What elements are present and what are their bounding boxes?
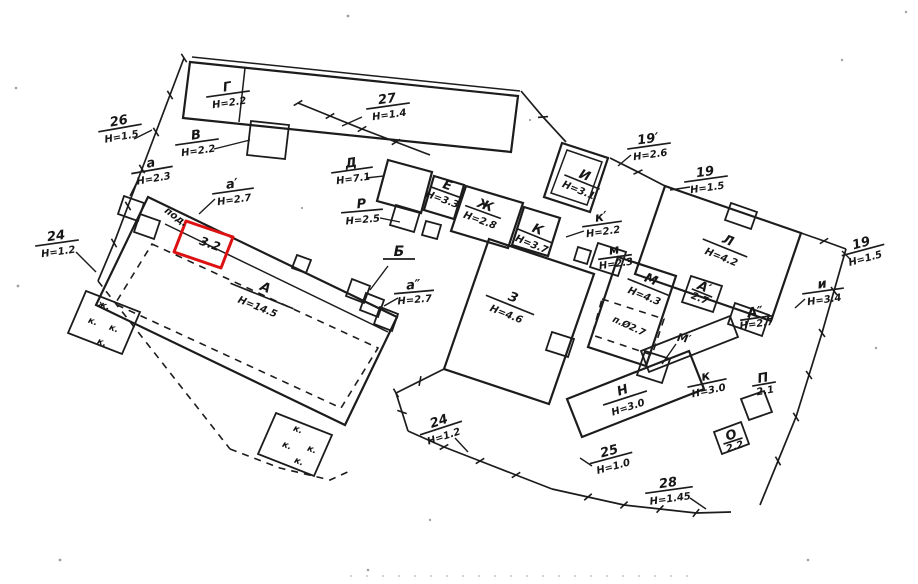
- label-bottom: Н=1.45: [649, 491, 692, 508]
- leader: [384, 298, 398, 306]
- leader: [690, 498, 706, 509]
- label-building-zh: Ж Н=2.8: [460, 192, 506, 232]
- building-g-roofline: [192, 57, 520, 91]
- fence-19-top: [801, 233, 846, 249]
- label-bottom: Н=2.5: [345, 213, 380, 227]
- label-m-small: м Н=2.3: [596, 241, 634, 273]
- mark-letter: к.: [280, 440, 293, 453]
- label-porch-a2: а″ Н=2.7: [393, 276, 435, 307]
- label-box-a1s: А′ 2.7: [687, 277, 717, 308]
- label-bottom: Н=2.6: [632, 148, 668, 164]
- square-symbol: [574, 247, 591, 264]
- label-bottom: Н=1.5: [104, 129, 140, 146]
- scan-noise: [15, 11, 908, 576]
- label-text: Б: [394, 244, 405, 260]
- label-fence-19-prime: 19′ Н=2.6: [625, 129, 673, 164]
- mark-letter: к.: [291, 424, 304, 437]
- label-building-d: Д Н=7.1: [329, 153, 375, 188]
- label-box-o: О 2.2: [719, 426, 746, 456]
- label-bottom: Н=3.4: [806, 293, 842, 309]
- mark-letter: к.: [86, 316, 98, 329]
- mark-letter: к.: [107, 323, 119, 336]
- leader: [199, 199, 215, 214]
- label-fence-26: 26 Н=1.5: [96, 110, 144, 146]
- basement-dashed-outline: [115, 244, 378, 408]
- label-fence-28: 28 Н=1.45: [643, 473, 695, 508]
- label-building-z: З Н=4.6: [480, 281, 540, 329]
- fence-27: [298, 103, 430, 155]
- building-a-outline: [96, 197, 397, 425]
- label-building-g: Г Н=2.2: [204, 77, 252, 112]
- label-bottom: Н=7.1: [335, 172, 371, 188]
- porch-e: [422, 221, 441, 239]
- label-k-small: к′ Н=2.2: [580, 207, 624, 240]
- label-building-a-main: А Н=14.5: [224, 268, 300, 325]
- label-text: под.: [162, 205, 189, 229]
- leader: [370, 266, 388, 290]
- marks-bottom-room: к. к. к. к.: [280, 424, 318, 469]
- label-bottom: Н=1.4: [371, 108, 407, 124]
- label-building-v: В Н=2.2: [173, 125, 221, 160]
- leader: [455, 438, 468, 452]
- leader: [76, 252, 96, 272]
- label-text: М′: [676, 331, 692, 346]
- label-bottom: Н=3.1: [560, 179, 596, 202]
- fence-g-i: [521, 91, 566, 142]
- fence-25-28: [552, 489, 731, 513]
- boundary-dashed-bottom: [230, 449, 352, 480]
- fence-right: [760, 249, 846, 505]
- label-bottom: Н=2.2: [585, 225, 621, 241]
- label-i-small: и Н=3.4: [800, 274, 846, 309]
- label-m-basement: п.Ø2.7: [611, 314, 648, 339]
- building-m-outline: [588, 257, 676, 366]
- site-plan-scan: 26 Н=1.5 Г Н=2.2 В Н=2.2 27 Н=1.4 а Н=2.…: [0, 0, 918, 584]
- label-basement-pod: под.: [162, 205, 189, 229]
- label-fence-24-west: 24 Н=1.2: [33, 226, 81, 261]
- label-bottom: Н=1.5: [689, 181, 725, 197]
- label-bottom: Н=4.2: [703, 246, 739, 269]
- label-m-prime: М′: [676, 331, 692, 346]
- porch-square: [134, 214, 160, 239]
- label-porch-a: а Н=2.3: [129, 153, 175, 189]
- label-bottom: Н=1.2: [40, 245, 76, 261]
- plan-drawing: 26 Н=1.5 Г Н=2.2 В Н=2.2 27 Н=1.4 а Н=2.…: [0, 0, 918, 584]
- boundary-dashed-left: [98, 281, 230, 449]
- label-fence-25: 25 Н=1.0: [586, 439, 636, 478]
- label-top: М: [642, 271, 660, 290]
- label-highlighted-value: 3.2: [198, 234, 223, 254]
- label-bottom: Н=3.3: [424, 189, 460, 211]
- leader: [566, 231, 584, 237]
- leader: [214, 140, 250, 149]
- mark-letter: к.: [305, 444, 318, 457]
- leader: [380, 218, 400, 222]
- label-bottom: Н=2.7: [397, 293, 432, 307]
- label-fence-19-a: 19 Н=1.5: [682, 162, 730, 197]
- building-a-inner-wall: [165, 224, 388, 332]
- mark-letter: к.: [292, 456, 305, 469]
- label-bottom: 2.1: [756, 384, 775, 398]
- label-building-l: Л Н=4.2: [697, 225, 753, 272]
- leader: [795, 299, 805, 308]
- label-fence-27: 27 Н=1.4: [364, 89, 412, 124]
- label-text: п.Ø2.7: [611, 314, 648, 339]
- room-k-marks-bottom: [258, 413, 332, 476]
- label-bottom: Н=4.3: [626, 285, 662, 308]
- label-bottom: Н=2.2: [211, 96, 247, 112]
- label-porch-b: Б: [383, 244, 415, 260]
- leader: [580, 458, 592, 466]
- label-porch-a2s: А″ Н=2.7: [737, 303, 775, 333]
- label-bottom: Н=2.2: [180, 144, 216, 160]
- label-bottom: Н=4.6: [488, 303, 524, 326]
- label-building-i: И Н=3.1: [559, 162, 605, 203]
- label-annex-kn: к Н=3.0: [685, 365, 730, 401]
- building-d-outline: [377, 160, 432, 213]
- label-bottom: Н=2.7: [216, 193, 252, 209]
- label-bottom: Н=2.8: [462, 210, 498, 232]
- label-text: 3.2: [198, 234, 223, 254]
- label-porch-a1: а′ Н=2.7: [210, 174, 256, 209]
- fence-left: [98, 58, 184, 281]
